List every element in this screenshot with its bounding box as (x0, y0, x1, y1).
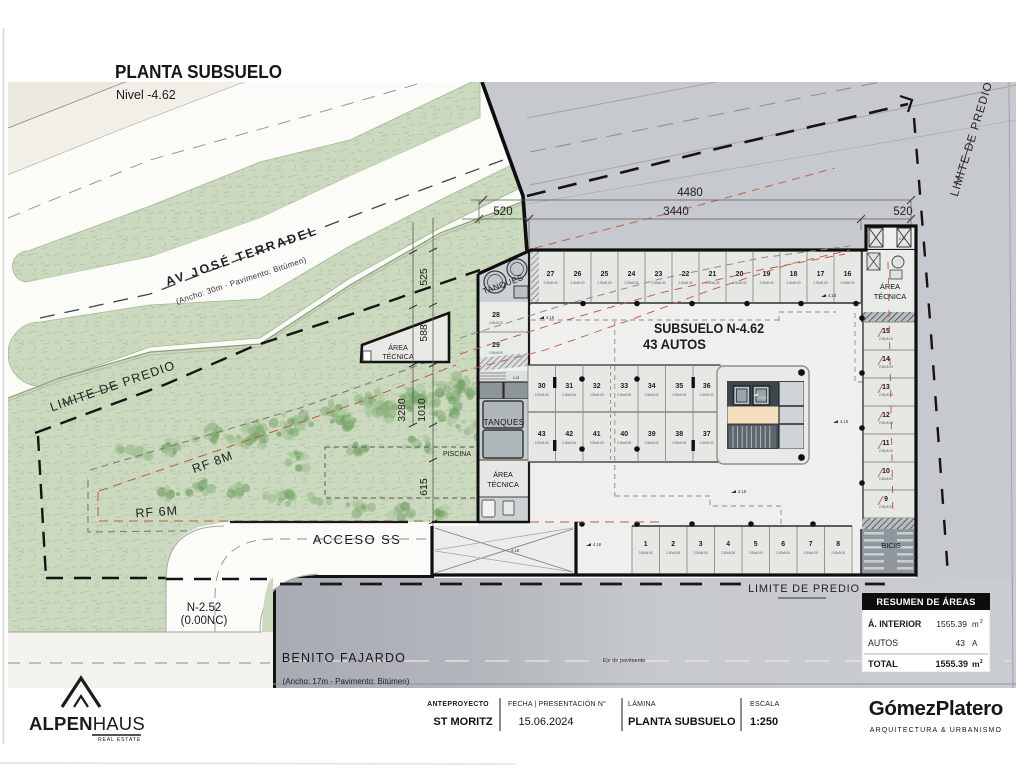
svg-text:2.50x5.00: 2.50x5.00 (562, 393, 576, 397)
svg-text:LÁMINA: LÁMINA (628, 699, 656, 708)
svg-text:10: 10 (882, 468, 890, 475)
svg-text:4.18: 4.18 (738, 489, 747, 494)
svg-text:RF 6M: RF 6M (135, 504, 178, 521)
svg-text:35: 35 (675, 383, 683, 390)
svg-text:4: 4 (726, 541, 730, 548)
svg-text:TÉCNICA: TÉCNICA (487, 480, 519, 489)
svg-text:2.50x5.00: 2.50x5.00 (879, 449, 893, 453)
svg-text:ALPENHAUS: ALPENHAUS (29, 713, 145, 734)
svg-text:2.50x5.00: 2.50x5.00 (776, 551, 790, 555)
svg-text:2.50x5.00: 2.50x5.00 (813, 281, 827, 285)
svg-text:12: 12 (882, 412, 890, 419)
svg-text:(0.00NC): (0.00NC) (181, 615, 228, 627)
svg-text:7: 7 (809, 541, 813, 548)
svg-text:18: 18 (790, 271, 798, 278)
svg-text:2.50x5.00: 2.50x5.00 (651, 281, 665, 285)
svg-text:4.70: 4.70 (899, 237, 905, 241)
svg-text:ST MORITZ: ST MORITZ (433, 716, 493, 728)
svg-text:4.18: 4.18 (513, 376, 520, 380)
svg-text:8: 8 (836, 541, 840, 548)
svg-text:2.50x5.00: 2.50x5.00 (570, 281, 584, 285)
svg-text:2.50x5.00: 2.50x5.00 (879, 477, 893, 481)
svg-text:TÉCNICA: TÉCNICA (874, 292, 907, 301)
svg-text:BICIS: BICIS (881, 541, 901, 550)
svg-text:37: 37 (703, 431, 711, 438)
svg-text:23: 23 (655, 271, 663, 278)
svg-text:2.50x5.00: 2.50x5.00 (879, 365, 893, 369)
svg-text:588: 588 (418, 324, 430, 342)
svg-text:2.50x5.00: 2.50x5.00 (759, 281, 773, 285)
svg-text:16: 16 (844, 271, 852, 278)
svg-text:2.50x5.00: 2.50x5.00 (694, 551, 708, 555)
svg-text:PLANTA SUBSUELO: PLANTA SUBSUELO (115, 62, 282, 82)
svg-text:AUTOS: AUTOS (868, 638, 898, 648)
svg-text:3: 3 (699, 541, 703, 548)
svg-text:TANQUES: TANQUES (483, 418, 524, 427)
svg-text:TÉCNICA: TÉCNICA (382, 352, 414, 361)
svg-text:2.50x5.00: 2.50x5.00 (489, 351, 503, 355)
svg-text:42: 42 (565, 431, 573, 438)
svg-text:43: 43 (956, 638, 966, 648)
svg-text:2.50x5.00: 2.50x5.00 (597, 281, 611, 285)
svg-text:2.50x5.00: 2.50x5.00 (645, 441, 659, 445)
svg-text:2.50x5.00: 2.50x5.00 (672, 393, 686, 397)
svg-text:15.06.2024: 15.06.2024 (518, 716, 573, 728)
svg-text:1010: 1010 (416, 398, 428, 422)
svg-text:2.50x5.00: 2.50x5.00 (590, 441, 604, 445)
svg-text:3440: 3440 (663, 206, 689, 218)
svg-text:2.50x5.00: 2.50x5.00 (840, 281, 854, 285)
svg-text:11: 11 (882, 440, 889, 447)
svg-text:N-2.52: N-2.52 (187, 602, 222, 614)
svg-text:2.50x5.00: 2.50x5.00 (879, 337, 893, 341)
svg-text:15: 15 (882, 328, 890, 335)
svg-text:TOTAL: TOTAL (868, 659, 898, 669)
svg-text:4480: 4480 (677, 187, 703, 199)
svg-text:520: 520 (893, 206, 912, 218)
svg-text:2.50x5.00: 2.50x5.00 (666, 551, 680, 555)
svg-text:Nivel -4.62: Nivel -4.62 (116, 88, 176, 102)
svg-text:36: 36 (703, 383, 711, 390)
svg-text:20: 20 (736, 271, 744, 278)
svg-text:1555.39: 1555.39 (936, 619, 967, 629)
svg-text:4.18: 4.18 (546, 315, 555, 320)
svg-text:ÁREA: ÁREA (880, 282, 900, 291)
svg-text:GómezPlatero: GómezPlatero (869, 697, 1003, 720)
svg-text:2.50x5.00: 2.50x5.00 (590, 393, 604, 397)
svg-text:ÁREA: ÁREA (493, 470, 513, 479)
svg-text:26: 26 (574, 271, 582, 278)
svg-text:PISCINA: PISCINA (443, 451, 471, 458)
svg-text:2.50x5.00: 2.50x5.00 (721, 551, 735, 555)
svg-text:FECHA | PRESENTACIÓN N°: FECHA | PRESENTACIÓN N° (508, 699, 606, 708)
svg-text:2.50x5.00: 2.50x5.00 (645, 393, 659, 397)
svg-text:Eje de pavimento: Eje de pavimento (603, 658, 646, 664)
svg-text:4.18: 4.18 (828, 293, 837, 298)
svg-text:21: 21 (709, 271, 717, 278)
svg-text:3280: 3280 (396, 398, 408, 422)
svg-text:27: 27 (547, 271, 555, 278)
svg-text:1555.39: 1555.39 (935, 659, 968, 669)
svg-text:40: 40 (620, 431, 628, 438)
svg-text:2.50x5.00: 2.50x5.00 (489, 321, 503, 325)
svg-text:Á. INTERIOR: Á. INTERIOR (868, 619, 922, 629)
svg-text:33: 33 (620, 383, 628, 390)
svg-text:REAL ESTATE: REAL ESTATE (98, 737, 141, 743)
svg-text:LIMITE DE PREDIO: LIMITE DE PREDIO (748, 583, 860, 595)
svg-text:A: A (972, 639, 978, 648)
svg-text:2.50x5.00: 2.50x5.00 (749, 551, 763, 555)
svg-text:14: 14 (882, 356, 890, 363)
svg-text:31: 31 (565, 383, 573, 390)
svg-text:38: 38 (675, 431, 683, 438)
svg-text:2.50x5.00: 2.50x5.00 (804, 551, 818, 555)
svg-text:43 AUTOS: 43 AUTOS (643, 337, 706, 352)
svg-text:34: 34 (648, 383, 656, 390)
svg-text:2: 2 (671, 541, 675, 548)
svg-text:2.50x5.00: 2.50x5.00 (732, 281, 746, 285)
svg-text:1:250: 1:250 (750, 716, 778, 728)
svg-text:6: 6 (781, 541, 785, 548)
svg-text:m: m (972, 659, 980, 669)
svg-text:2.50x5.00: 2.50x5.00 (700, 393, 714, 397)
svg-text:ÁREA: ÁREA (388, 343, 408, 352)
svg-text:RESUMEN DE ÁREAS: RESUMEN DE ÁREAS (876, 596, 975, 607)
svg-text:525: 525 (418, 268, 430, 286)
svg-text:2.50x5.00: 2.50x5.00 (624, 281, 638, 285)
svg-text:2.50x5.00: 2.50x5.00 (562, 441, 576, 445)
svg-text:17: 17 (817, 271, 825, 278)
svg-text:2.50x5.00: 2.50x5.00 (617, 441, 631, 445)
svg-text:13: 13 (882, 384, 890, 391)
svg-text:4.18: 4.18 (511, 548, 520, 553)
svg-text:2.50x5.00: 2.50x5.00 (786, 281, 800, 285)
svg-text:5: 5 (754, 541, 758, 548)
svg-text:ESCALA: ESCALA (750, 701, 779, 708)
svg-text:9: 9 (884, 496, 888, 503)
svg-text:41: 41 (593, 431, 601, 438)
svg-text:ANTEPROYECTO: ANTEPROYECTO (427, 701, 489, 708)
svg-text:1: 1 (644, 541, 648, 548)
svg-text:32: 32 (593, 383, 601, 390)
svg-text:24: 24 (628, 271, 636, 278)
svg-text:2.50x5.00: 2.50x5.00 (678, 281, 692, 285)
svg-text:-4.62: -4.62 (757, 395, 767, 400)
svg-text:30: 30 (538, 383, 546, 390)
svg-text:4.18: 4.18 (593, 542, 602, 547)
svg-text:615: 615 (418, 478, 430, 496)
svg-text:2.50x5.00: 2.50x5.00 (543, 281, 557, 285)
svg-text:2.50x5.00: 2.50x5.00 (700, 441, 714, 445)
svg-text:4.18: 4.18 (840, 419, 849, 424)
svg-text:(Ancho: 17m - Pavimento: Bitúm: (Ancho: 17m - Pavimento: Bitúmen) (283, 677, 410, 686)
svg-text:2.50x5.00: 2.50x5.00 (535, 441, 549, 445)
svg-text:2.50x5.00: 2.50x5.00 (831, 551, 845, 555)
svg-text:BENITO FAJARDO: BENITO FAJARDO (282, 651, 406, 665)
svg-text:m: m (972, 620, 979, 629)
svg-text:43: 43 (538, 431, 546, 438)
svg-text:ACCESO SS: ACCESO SS (313, 532, 401, 547)
svg-text:2.50x5.00: 2.50x5.00 (639, 551, 653, 555)
svg-text:28: 28 (492, 312, 500, 319)
svg-text:2: 2 (980, 619, 983, 625)
svg-text:2.50x5.00: 2.50x5.00 (617, 393, 631, 397)
svg-text:2: 2 (980, 659, 983, 665)
svg-text:2.50x5.00: 2.50x5.00 (879, 505, 893, 509)
svg-text:2.50x5.00: 2.50x5.00 (672, 441, 686, 445)
svg-text:ARQUITECTURA & URBANISMO: ARQUITECTURA & URBANISMO (870, 727, 1002, 734)
svg-text:39: 39 (648, 431, 656, 438)
svg-text:SUBSUELO N-4.62: SUBSUELO N-4.62 (654, 321, 764, 336)
svg-text:PLANTA SUBSUELO: PLANTA SUBSUELO (628, 716, 736, 728)
svg-text:2.50x5.00: 2.50x5.00 (535, 393, 549, 397)
svg-text:25: 25 (601, 271, 609, 278)
svg-text:520: 520 (493, 206, 512, 218)
